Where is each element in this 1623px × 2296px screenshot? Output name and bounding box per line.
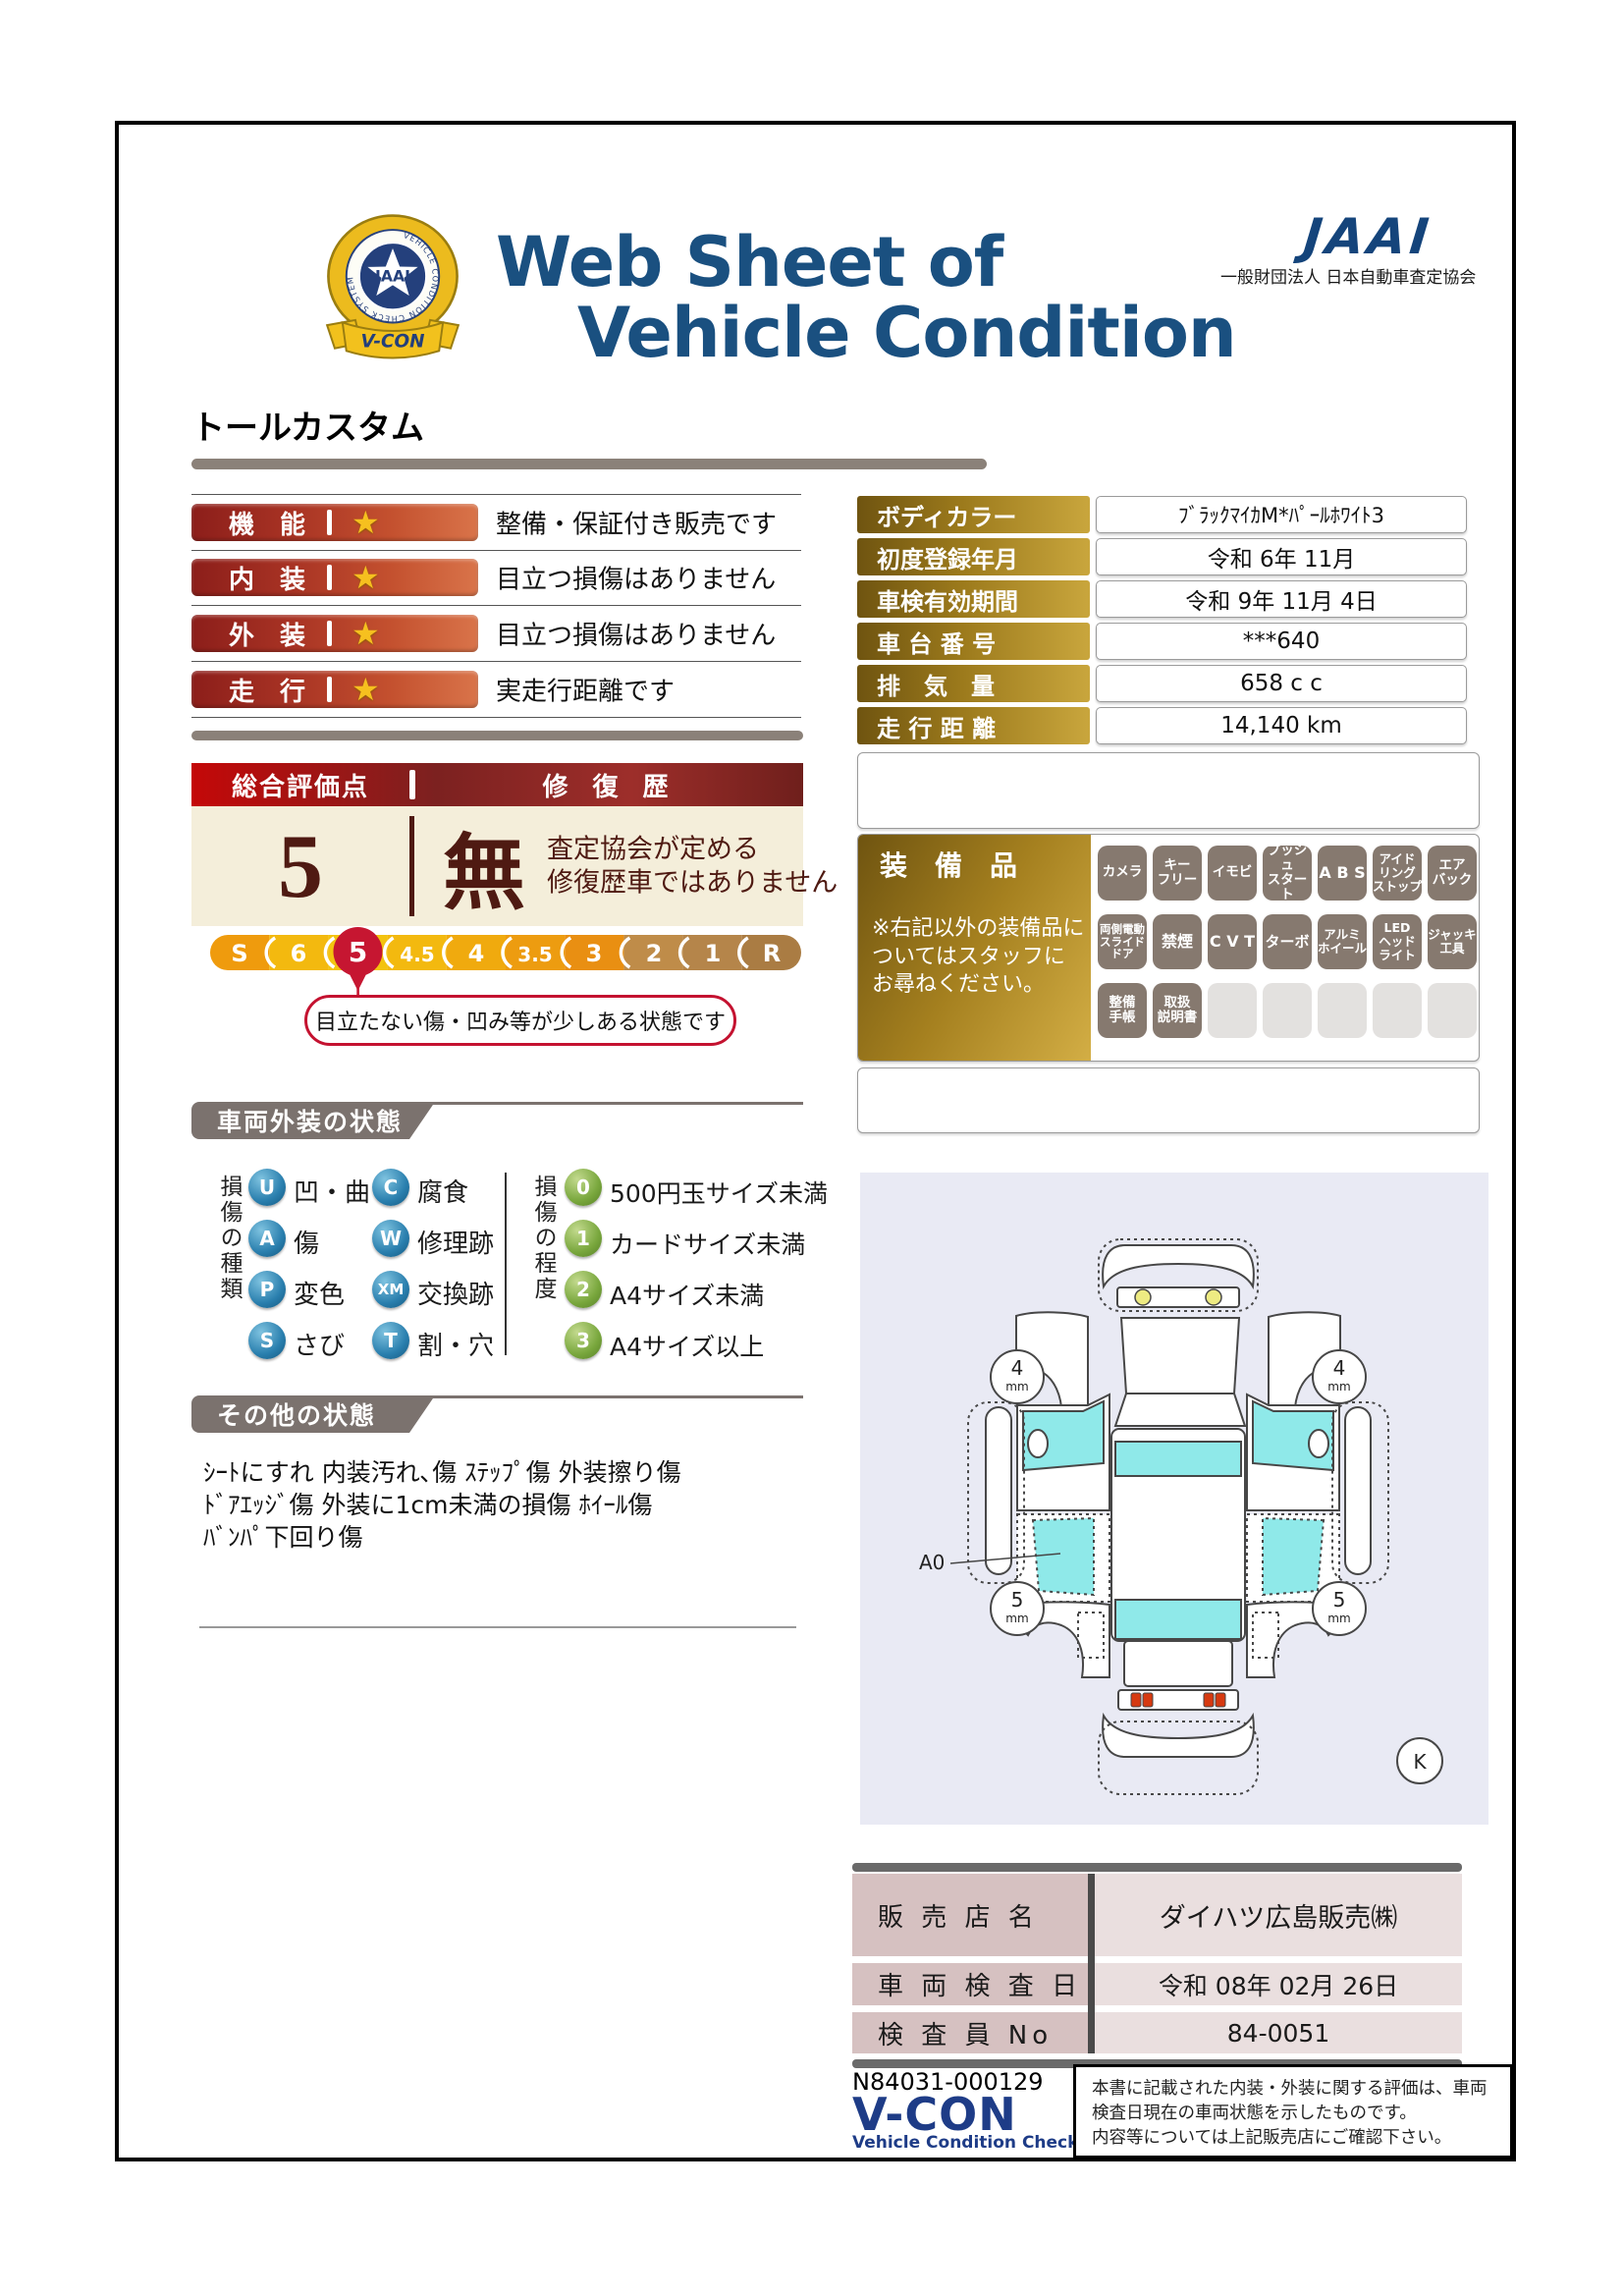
sheet-title-line2: Vehicle Condition: [577, 293, 1236, 373]
star-icon: ★: [352, 559, 380, 596]
damage-code-t: T: [372, 1322, 409, 1359]
equipment-badge-jacktools: ジャッキ 工具: [1428, 914, 1477, 969]
rear-hatch: [1124, 1641, 1232, 1686]
repair-note-line1: 査定協会が定める: [547, 833, 838, 866]
degree-code-2: 2: [565, 1271, 602, 1308]
equipment-badge-powerslidedoor: 両側電動 スライド ドア: [1098, 914, 1147, 969]
scale-label-2: 2: [646, 940, 663, 967]
info-value-inspection-validity: 令和 9年 11月 4日: [1096, 580, 1467, 618]
legend-divider: [505, 1173, 507, 1355]
taillight-right-icon: [1216, 1693, 1225, 1707]
info-label-inspection-validity: 車検有効期間: [857, 580, 1090, 618]
disclaimer-line1: 本書に記載された内装・外装に関する評価は、車両: [1092, 2077, 1510, 2102]
damage-code-c: C: [372, 1169, 409, 1206]
damage-label-a: 傷: [294, 1224, 319, 1260]
repair-history-value: 無: [427, 806, 541, 926]
degree-label-0: 500円玉サイズ未満: [610, 1175, 828, 1210]
damage-code-w: W: [372, 1220, 409, 1257]
scale-label-4-5: 4.5: [400, 943, 434, 966]
equipment-badge-empty: [1208, 983, 1257, 1038]
dealer-value-inspection-date: 令和 08年 02月 26日: [1095, 1963, 1462, 2005]
equipment-badge-nosmoking: 禁煙: [1153, 914, 1202, 969]
star-icon: ★: [352, 671, 380, 708]
dealer-table-divider: [1088, 1874, 1095, 2053]
headlight-left-icon: [1135, 1289, 1151, 1305]
equipment-badge-camera: カメラ: [1098, 846, 1147, 901]
scale-label-r: R: [763, 940, 781, 967]
taillight-right-icon: [1204, 1693, 1214, 1707]
scale-label-4: 4: [468, 940, 485, 967]
scale-label-s: S: [231, 940, 247, 967]
roof-front-glass: [1115, 1442, 1241, 1476]
front-tire-left-depth: 4: [1011, 1356, 1024, 1380]
grade-note-capsule: 目立たない傷・凹み等が少しある状態です: [304, 995, 736, 1046]
scale-label-3: 3: [586, 940, 603, 967]
rating-label: 内 装: [229, 560, 305, 596]
tire-unit: mm: [1005, 1612, 1028, 1625]
info-label-mileage: 走 行 距 離: [857, 707, 1090, 744]
section-header-other: その他の状態: [191, 1395, 435, 1433]
damage-label-p: 変色: [294, 1275, 345, 1311]
sheet-title-line1: Web Sheet of: [496, 222, 1002, 302]
rating-row-function: 機 能 ★ 整備・保証付き販売です: [191, 494, 801, 551]
other-condition-text: ｼｰﾄにすれ 内装汚れ､傷 ｽﾃｯﾌﾟ傷 外装擦り傷 ﾄﾞｱｴｯｼﾞ傷 外装に1…: [203, 1456, 681, 1554]
overall-body-divider: [409, 816, 414, 916]
rating-desc: 目立つ損傷はありません: [496, 616, 776, 652]
damage-degree-vertical-label: 損傷の程度: [526, 1175, 560, 1302]
damage-code-p: P: [248, 1271, 286, 1308]
damage-label-t: 割・穴: [417, 1326, 494, 1362]
equipment-gold-panel: 装 備 品 ※右記以外の装備品に ついてはスタッフに お尋ねください。: [858, 835, 1091, 1061]
disclaimer-line3: 内容等については上記販売店にご確認下さい。: [1092, 2126, 1510, 2151]
rear-tire-right-depth: 5: [1333, 1588, 1346, 1612]
equipment-badge-pushstart: プッシュ スタート: [1263, 846, 1312, 901]
taillight-left-icon: [1143, 1693, 1153, 1707]
equipment-badge-maintenancebook: 整備 手帳: [1098, 983, 1147, 1038]
equipment-badge-immobilizer: イモビ: [1208, 846, 1257, 901]
rating-row-interior: 内 装 ★ 目立つ損傷はありません: [191, 550, 801, 606]
info-label-chassis-number: 車 台 番 号: [857, 623, 1090, 660]
equipment-badge-airbag: エア バック: [1428, 846, 1477, 901]
other-condition-line1: ｼｰﾄにすれ 内装汚れ､傷 ｽﾃｯﾌﾟ傷 外装擦り傷: [203, 1456, 681, 1489]
jaai-subtitle: 一般財団法人 日本自動車査定協会: [1220, 263, 1476, 288]
degree-code-0: 0: [565, 1169, 602, 1206]
front-tire-right-depth: 4: [1333, 1356, 1346, 1380]
other-section-rule: [199, 1626, 796, 1628]
rating-row-exterior: 外 装 ★ 目立つ損傷はありません: [191, 606, 801, 662]
door-mirror: [1028, 1430, 1048, 1457]
repair-history-note: 査定協会が定める 修復歴車ではありません: [547, 833, 838, 900]
equipment-badge-empty: [1318, 983, 1367, 1038]
dealer-label-shop: 販 売 店 名: [852, 1874, 1088, 1956]
equipment-badge-turbo: ターボ: [1263, 914, 1312, 969]
damage-annotation: A0: [919, 1551, 945, 1574]
overall-header: 総合評価点 修 復 歴: [191, 763, 803, 806]
front-bumper: [1103, 1245, 1254, 1286]
windshield: [1115, 1394, 1245, 1426]
info-label-first-registration: 初度登録年月: [857, 538, 1090, 575]
dealer-value-shop: ダイハツ広島販売㈱: [1095, 1874, 1462, 1956]
rating-divider: [327, 510, 332, 535]
rating-desc: 実走行距離です: [496, 672, 675, 708]
rating-bar: 外 装 ★: [191, 615, 478, 652]
equipment-badge-ledheadlight: LED ヘッド ライト: [1373, 914, 1422, 969]
vcon-emblem-logo: VEHICLE CONDITION CHECK SYSTEM JAAI V-CO…: [314, 214, 471, 369]
degree-label-2: A4サイズ未満: [610, 1277, 764, 1312]
car-diagram-panel: 4 mm 4 mm 5 mm 5 mm A0 K: [860, 1173, 1488, 1825]
scale-label-3-5: 3.5: [517, 943, 552, 966]
damage-code-a: A: [248, 1220, 286, 1257]
model-name: トールカスタム: [191, 401, 424, 449]
emblem-ribbon-text: V-CON: [361, 331, 425, 352]
info-empty-box: [857, 752, 1480, 829]
other-condition-line3: ﾊﾞﾝﾊﾟ下回り傷: [203, 1521, 681, 1554]
vehicle-condition-sheet: VEHICLE CONDITION CHECK SYSTEM JAAI V-CO…: [0, 0, 1623, 2296]
equipment-title: 装 備 品: [880, 845, 1017, 884]
degree-label-1: カードサイズ未満: [610, 1226, 805, 1261]
overall-body: 5 無 査定協会が定める 修復歴車ではありません: [191, 806, 803, 926]
rating-divider: [327, 677, 332, 702]
damage-code-xm: XM: [372, 1271, 409, 1308]
tire-unit: mm: [1327, 1380, 1350, 1394]
rating-label: 機 能: [229, 505, 305, 541]
equipment-badge-empty: [1428, 983, 1477, 1038]
dealer-label-inspector-no: 検 査 員 No: [852, 2012, 1088, 2053]
info-value-mileage: 14,140 km: [1096, 707, 1467, 744]
degree-code-1: 1: [565, 1220, 602, 1257]
overall-header-left: 総合評価点: [191, 767, 409, 803]
dealer-value-inspector-no: 84-0051: [1095, 2012, 1462, 2053]
damage-label-c: 腐食: [417, 1173, 468, 1209]
rating-bar: 走 行 ★: [191, 671, 478, 708]
rating-bar: 機 能 ★: [191, 504, 478, 541]
degree-code-3: 3: [565, 1322, 602, 1359]
dealer-table-top-bar: [852, 1863, 1462, 1872]
info-value-first-registration: 令和 6年 11月: [1096, 538, 1467, 575]
degree-label-3: A4サイズ以上: [610, 1328, 764, 1363]
equipment-empty-box: [857, 1067, 1480, 1133]
equipment-badge-idlingstop: アイド リング ストップ: [1373, 846, 1422, 901]
section-header-line: [432, 1102, 803, 1105]
equipment-badge-alloywheel: アルミ ホイール: [1318, 914, 1367, 969]
info-label-body-color: ボディカラー: [857, 496, 1090, 533]
star-icon: ★: [352, 615, 380, 652]
damage-label-xm: 交換跡: [417, 1275, 494, 1311]
other-condition-line2: ﾄﾞｱｴｯｼﾞ傷 外装に1cm未満の損傷 ﾎｲｰﾙ傷: [203, 1489, 681, 1521]
info-value-chassis-number: ***640: [1096, 623, 1467, 660]
damage-label-u: 凹・曲: [294, 1173, 370, 1209]
jaai-logo: JAAI: [1301, 208, 1435, 265]
rating-row-mileage: 走 行 ★ 実走行距離です: [191, 662, 801, 718]
equipment-note: ※右記以外の装備品に ついてはスタッフに お尋ねください。: [872, 915, 1084, 1000]
car-diagram: 4 mm 4 mm 5 mm 5 mm A0 K: [860, 1173, 1488, 1825]
equipment-badge-manual: 取扱 説明書: [1153, 983, 1202, 1038]
overall-header-right: 修 復 歴: [415, 767, 803, 803]
star-icon: ★: [352, 504, 380, 541]
overall-score: 5: [191, 806, 409, 926]
section-header-line: [432, 1395, 803, 1398]
scale-selected-grade: 5: [349, 936, 367, 968]
divider-bar-top: [191, 459, 987, 469]
rating-label: 外 装: [229, 616, 305, 652]
info-label-displacement: 排 気 量: [857, 665, 1090, 702]
damage-label-s: さび: [294, 1326, 345, 1362]
damage-code-s: S: [248, 1322, 286, 1359]
rating-desc: 整備・保証付き販売です: [496, 505, 777, 541]
damage-label-w: 修理跡: [417, 1224, 494, 1260]
rating-divider: [327, 565, 332, 590]
headlight-right-icon: [1206, 1289, 1221, 1305]
sliding-door-window: [1033, 1518, 1094, 1595]
equipment-badge-keyfree: キー フリー: [1153, 846, 1202, 901]
section-header-exterior: 車両外装の状態: [191, 1102, 435, 1139]
info-value-body-color: ﾌﾞﾗｯｸﾏｲｶM*ﾊﾟｰﾙﾎﾜｲﾄ3: [1096, 496, 1467, 533]
rear-tire-left-depth: 5: [1011, 1588, 1024, 1612]
grade-scale: S 6 4.5 4 3.5 3 2 1 R 5: [210, 927, 801, 996]
taillight-left-icon: [1131, 1693, 1141, 1707]
rating-desc: 目立つ損傷はありません: [496, 560, 776, 596]
rating-divider: [327, 621, 332, 646]
divider-bar-mid: [191, 731, 803, 740]
roof-rear-glass: [1115, 1600, 1241, 1639]
equipment-badge-abs: A B S: [1318, 846, 1367, 901]
overall-score-box: 総合評価点 修 復 歴 5 無 査定協会が定める 修復歴車ではありません: [191, 763, 803, 926]
tire-unit: mm: [1005, 1380, 1028, 1394]
tire-unit: mm: [1327, 1612, 1350, 1625]
repair-note-line2: 修復歴車ではありません: [547, 866, 838, 900]
scale-label-1: 1: [705, 940, 722, 967]
disclaimer-box: 本書に記載された内装・外装に関する評価は、車両 検査日現在の車両状態を示したもの…: [1073, 2064, 1513, 2159]
corner-mark: K: [1413, 1750, 1427, 1774]
equipment-badge-empty: [1263, 983, 1312, 1038]
info-value-displacement: 658 c c: [1096, 665, 1467, 702]
equipment-badge-empty: [1373, 983, 1422, 1038]
damage-kind-vertical-label: 損傷の種類: [212, 1175, 245, 1302]
emblem-star-text: JAAI: [374, 267, 410, 286]
damage-code-u: U: [248, 1169, 286, 1206]
scale-label-6: 6: [291, 940, 307, 967]
dealer-label-inspection-date: 車 両 検 査 日: [852, 1963, 1088, 2005]
equipment-badge-cvt: C V T: [1208, 914, 1257, 969]
hood: [1121, 1318, 1239, 1394]
rating-label: 走 行: [229, 672, 305, 708]
disclaimer-line2: 検査日現在の車両状態を示したものです。: [1092, 2102, 1510, 2126]
side-sill: [986, 1407, 1011, 1574]
rating-bar: 内 装 ★: [191, 559, 478, 596]
